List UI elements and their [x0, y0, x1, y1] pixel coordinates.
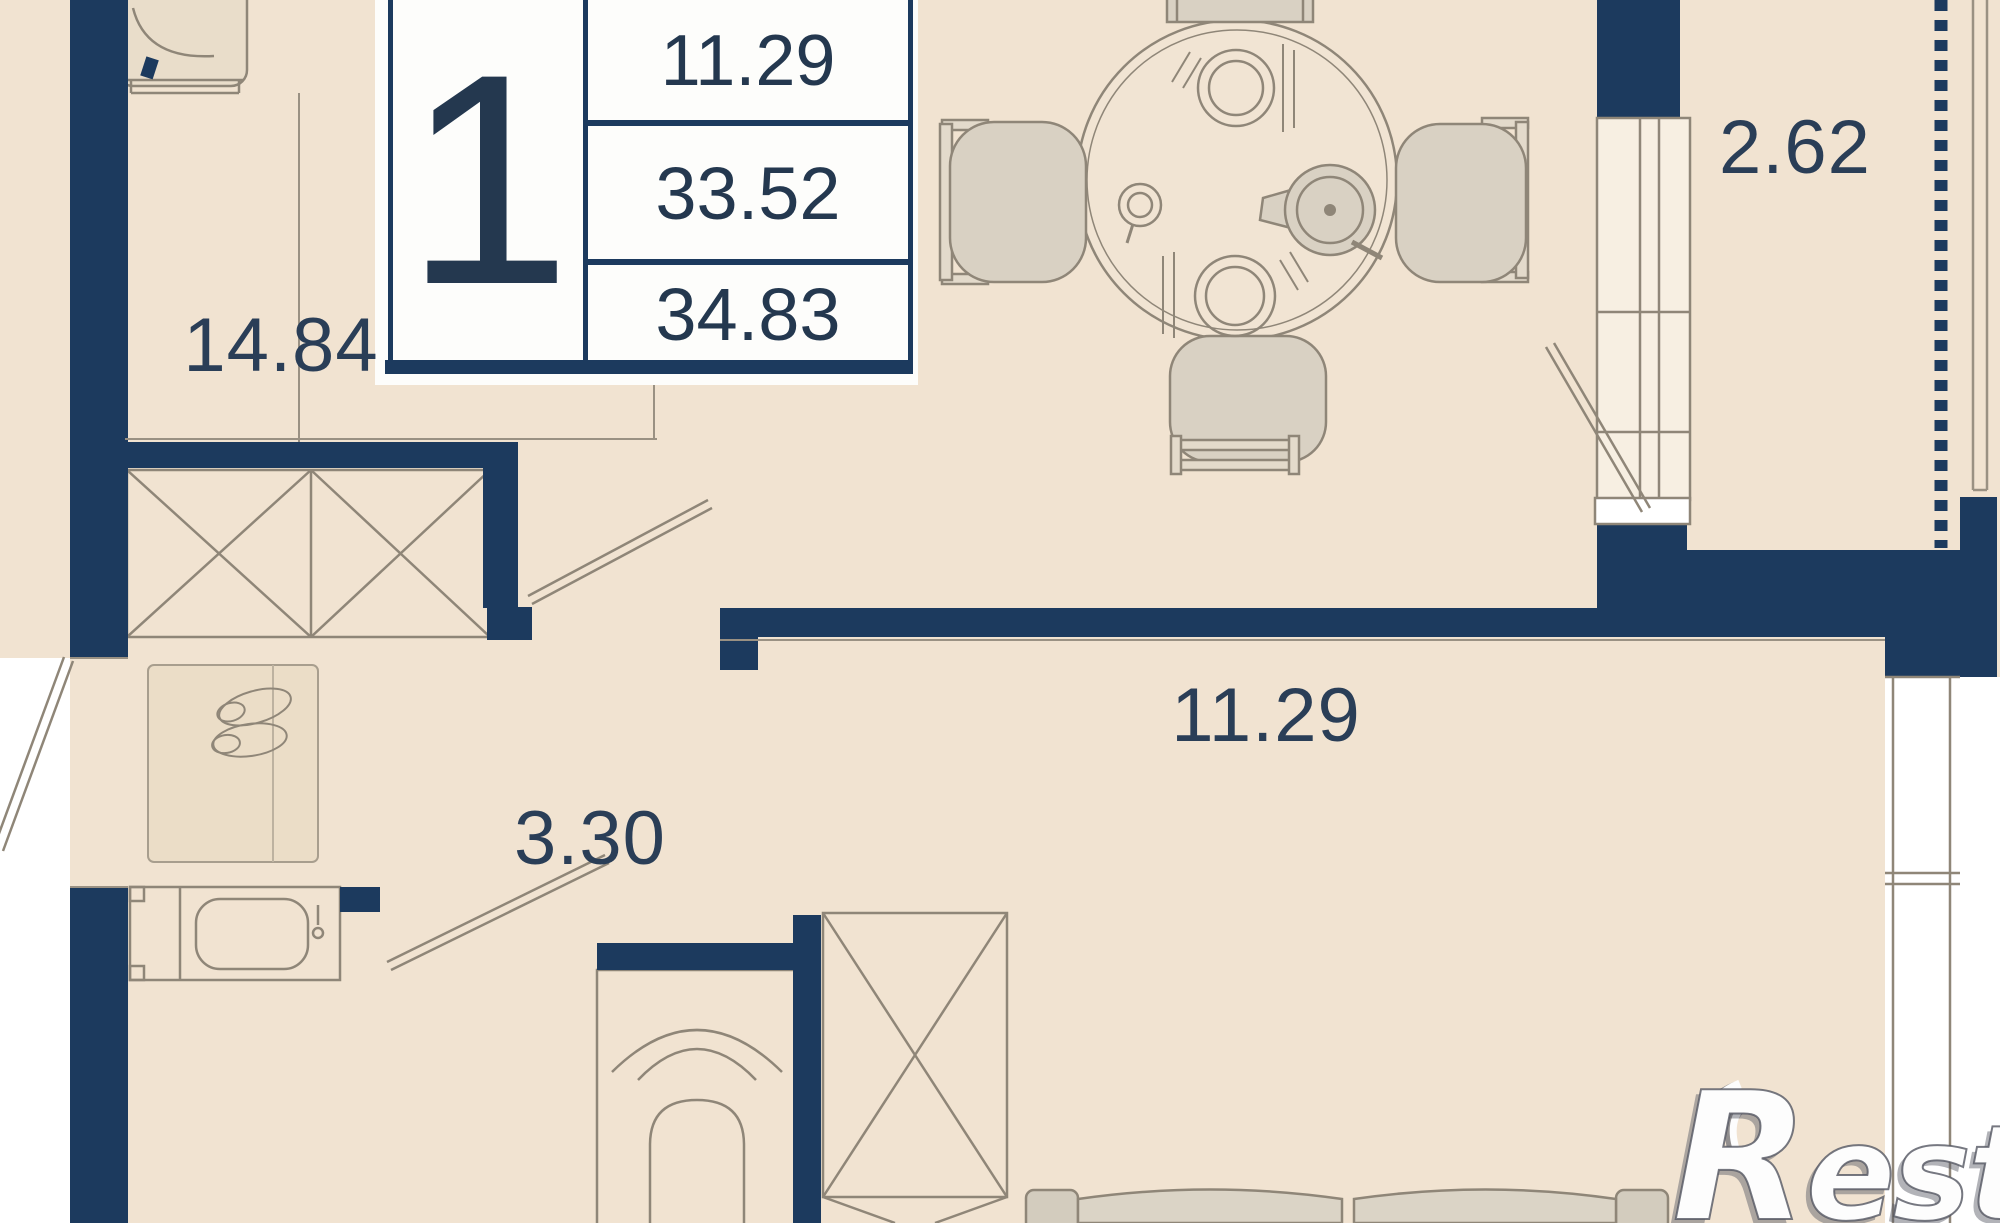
- label-hallway: 3.30: [430, 795, 750, 882]
- rug: [148, 665, 318, 862]
- bathtub: [597, 970, 795, 1223]
- label-living: 11.29: [1106, 672, 1426, 759]
- wall-left-upper: [70, 0, 128, 658]
- legend-panel: 1 11.29 33.52 34.83: [375, 0, 918, 385]
- wall-hall-stub: [487, 607, 532, 640]
- wall-living-top: [720, 608, 1960, 637]
- vanity-sink: [130, 887, 340, 980]
- dining-chair-top: [1167, 0, 1313, 22]
- wardrobe-hallway: [127, 470, 490, 637]
- wall-wardrobe-leg: [483, 468, 518, 608]
- wall-left-lower: [70, 887, 128, 1223]
- wall-balcony-pier: [1597, 523, 1687, 553]
- legend-living-area: 11.29: [588, 0, 908, 122]
- wall-wardrobe-top: [122, 442, 518, 468]
- wall-right: [1885, 550, 1960, 677]
- wall-bath-right: [793, 915, 821, 1223]
- outside-area: [0, 658, 70, 1223]
- door-swings: [0, 343, 1650, 970]
- wardrobe-living: [823, 913, 1007, 1223]
- dining-chair-left: [940, 120, 1086, 284]
- balcony-rail: [1973, 0, 1987, 490]
- label-room-main: 14.84: [121, 302, 441, 389]
- watermark-logo: Restate: [1672, 1078, 2000, 1223]
- legend-border-bottom: [385, 360, 913, 374]
- sofa: [1026, 1190, 1668, 1223]
- wall-right-outer: [1960, 497, 1997, 677]
- wall-balcony-header: [1597, 0, 1680, 118]
- label-balcony: 2.62: [1635, 104, 1955, 191]
- legend-divider-2: [583, 259, 913, 265]
- dining-chair-bottom: [1170, 336, 1326, 474]
- legend-area: 33.52: [588, 128, 908, 258]
- armchair: [117, 0, 247, 93]
- hallway-door: [528, 500, 712, 604]
- wall-bath-top: [597, 943, 795, 970]
- legend-border-right: [908, 0, 913, 374]
- dining-chair-right: [1396, 118, 1528, 282]
- wall-bath-stub: [340, 887, 380, 912]
- legend-total-area: 34.83: [588, 266, 908, 362]
- floor-plan: 1 11.29 33.52 34.83 14.84 3.30 11.29 2.6…: [0, 0, 2000, 1223]
